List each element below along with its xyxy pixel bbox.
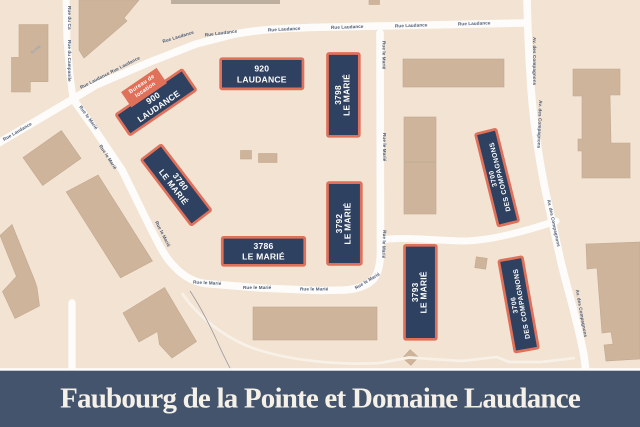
svg-text:Rue le Marié: Rue le Marié	[300, 287, 329, 292]
svg-text:Rue du Campanile: Rue du Campanile	[67, 40, 72, 82]
svg-text:Rue le Marié: Rue le Marié	[243, 285, 272, 290]
svg-text:Rue le Marié: Rue le Marié	[382, 41, 387, 70]
svg-text:3786: 3786	[254, 241, 274, 251]
svg-text:LE MARIÉ: LE MARIÉ	[343, 202, 353, 244]
svg-text:Rue le Marié: Rue le Marié	[381, 230, 387, 259]
svg-text:Av. des Compagnons: Av. des Compagnons	[532, 37, 537, 86]
svg-text:Rue du Ca: Rue du Ca	[67, 6, 72, 30]
svg-text:LE MARIÉ: LE MARIÉ	[342, 74, 352, 116]
svg-text:LAUDANCE: LAUDANCE	[237, 74, 287, 84]
svg-text:920: 920	[254, 64, 269, 74]
svg-text:LE MARIÉ: LE MARIÉ	[242, 252, 285, 262]
svg-text:Faubourg de la Pointe et Domai: Faubourg de la Pointe et Domaine Laudanc…	[60, 383, 581, 415]
svg-text:Rue le Marié: Rue le Marié	[382, 133, 387, 162]
svg-text:LE MARIÉ: LE MARIÉ	[419, 271, 429, 313]
